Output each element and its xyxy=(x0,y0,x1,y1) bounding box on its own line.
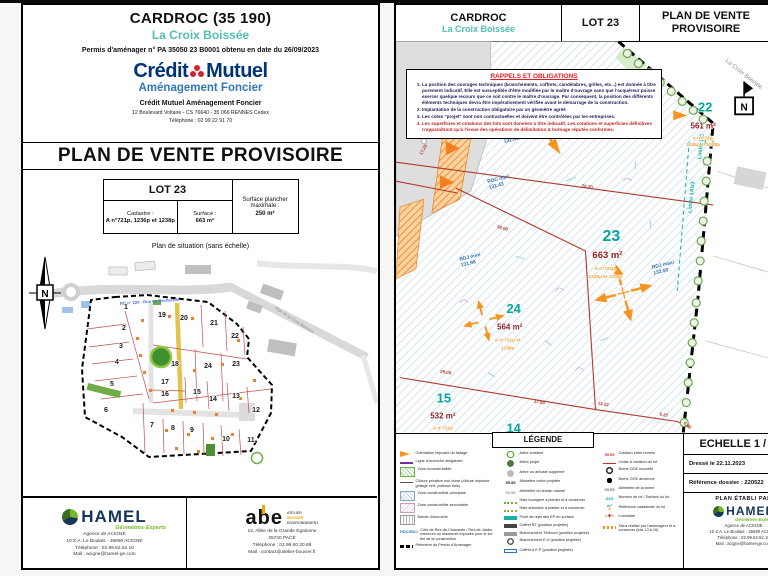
hamel-logo: HAMEL xyxy=(62,507,146,527)
legend-swatch-icon xyxy=(400,451,410,457)
cadastre-value: A n°721p, 1236p et 1238p xyxy=(104,218,178,224)
notice-item: Les cotes "projet" sont non contractuell… xyxy=(422,114,656,120)
legend-item: Coffret BT (position projetée) xyxy=(504,523,596,529)
map-lot-number: 16 xyxy=(161,391,169,398)
floor-area-box: Surface plancher maximale : 250 m² xyxy=(233,179,299,234)
abe-name: abe xyxy=(245,509,282,527)
svg-text:15: 15 xyxy=(437,391,451,406)
credit-mutuel-logo: Crédit Mutuel xyxy=(23,60,378,83)
left-header: CARDROC (35 190) La Croix Boissée Permis… xyxy=(23,5,378,143)
header-doc-cell: PLAN DE VENTE PROVISOIRE xyxy=(640,5,768,41)
hamel-globe-icon xyxy=(713,506,724,517)
legend-item: 55.55Altimétrie de la borne xyxy=(603,486,680,493)
hamel-tagline: Géomètres-Experts xyxy=(115,525,166,531)
legend-swatch-icon xyxy=(603,467,616,474)
legend-label: Numéro de lot / Surface du lot xyxy=(619,495,669,499)
legend-swatch-icon xyxy=(400,462,413,464)
doc-title: PLAN DE VENTE PROVISOIRE xyxy=(23,143,378,170)
hamel-address: Agence de ACIGNÉ10 Z.A. Le Boulais - 356… xyxy=(66,532,142,560)
scale-label: ECHELLE 1 / 250 xyxy=(684,434,768,455)
legend-swatch-icon xyxy=(504,538,517,545)
legend-label: Référence cadastrale du lot xyxy=(619,505,665,509)
legend-label: Zone inconstructible xyxy=(418,467,452,471)
abe-block: abe ATELIER BOUVIER ENVIRONNEMENT 12, Al… xyxy=(187,498,377,568)
hamel-logo: HAMEL xyxy=(684,504,768,518)
legend-label: Altimétrie de la borne xyxy=(619,486,655,490)
legend-swatch-icon xyxy=(603,463,616,464)
svg-text:1238p: 1238p xyxy=(501,346,515,352)
svg-text:A n°721p et: A n°721p et xyxy=(495,338,521,344)
legend-item: Borne OGE nouvelle xyxy=(603,467,680,474)
svg-text:663 m²: 663 m² xyxy=(592,250,622,261)
legend-item: XXX m²Numéro de lot / Surface du lot xyxy=(603,495,680,502)
map-lot-number: 9 xyxy=(190,427,194,434)
legend-label: Zone constructible principale xyxy=(418,491,466,495)
situation-map: N RD n° 220 - Rue de Bécherelle Rue de l… xyxy=(24,251,378,491)
legend-band: LÉGENDE Orientation imposée du faîtageLi… xyxy=(396,433,768,568)
header-doc-title: PLAN DE VENTE PROVISOIRE xyxy=(644,10,768,36)
map-lot-number: 5 xyxy=(110,381,114,388)
legend-label: Ligne d'accroche obligatoire xyxy=(416,459,463,463)
legend-swatch-icon xyxy=(603,477,616,484)
legend-swatch-icon xyxy=(504,460,517,467)
header-place: La Croix Boissée xyxy=(442,24,515,34)
legend-swatch-icon xyxy=(504,506,517,512)
svg-text:532 m²: 532 m² xyxy=(430,412,456,421)
map-lot-number: 17 xyxy=(161,379,169,386)
legend-swatch-icon: XXX m² xyxy=(603,495,616,502)
date-drawn: Dressé le 22.11.2023 xyxy=(684,455,768,474)
header-lot: LOT 23 xyxy=(582,17,619,29)
legend-item: Branchement E.U (position projetée) xyxy=(504,538,596,545)
abe-tagline: ATELIER BOUVIER ENVIRONNEMENT xyxy=(287,511,319,526)
legend-label: Branchement Télécom (position projetée) xyxy=(520,531,590,535)
legend-col-2: Arbre existantArbre projetArbre ou arbus… xyxy=(500,448,599,566)
legend-swatch-icon xyxy=(504,498,517,504)
map-lot-number: 14 xyxy=(209,396,217,403)
legend-item: Zone constructible secondaire xyxy=(400,503,497,513)
legend-label: Orientation imposée du faîtage xyxy=(416,451,468,455)
legend-item: 55.55Altimétrie voirie projetée xyxy=(504,479,596,486)
cm-word-2: Mutuel xyxy=(206,60,267,83)
north-letter: N xyxy=(740,102,747,113)
map-lot-number: 7 xyxy=(150,422,154,429)
legend-label: Haie bocagère à planter et à conserver xyxy=(520,498,586,502)
page-left: CARDROC (35 190) La Croix Boissée Permis… xyxy=(21,3,380,570)
legend-item: Bande d'accroche xyxy=(400,515,497,525)
svg-text:1236p et 1238p: 1236p et 1238p xyxy=(588,274,622,280)
legend-item: Point de rejet des EP en surface xyxy=(504,515,596,521)
legend-label: Talus réalisé par l'aménageur et à conse… xyxy=(619,524,681,533)
legend-swatch-icon: 55.55 xyxy=(603,486,616,493)
left-footer: HAMEL Géomètres-Experts Agence de ACIGNÉ… xyxy=(23,496,377,568)
map-lot-number: 12 xyxy=(252,407,260,414)
abe-tag-line: ENVIRONNEMENT xyxy=(287,521,319,526)
lot-summary: LOT 23 Cadastre : A n°721p, 1236p et 123… xyxy=(23,179,378,234)
legend-swatch-icon xyxy=(504,516,517,520)
cm-tagline: Aménagement Foncier xyxy=(23,82,378,94)
lot-number: LOT 23 xyxy=(104,180,232,201)
legend-col-3: 55.55Cotation entre bornesLimite & cotat… xyxy=(599,448,683,566)
map-lot-number: 4 xyxy=(115,359,119,366)
legend-label: Arbre ou arbuste supprimé xyxy=(520,470,565,474)
legend-swatch-icon xyxy=(400,503,415,513)
legend-label: Périmètre du Permis d'Aménager xyxy=(416,543,472,547)
address-line: 12, Allée de la Grande Egalonne xyxy=(247,529,316,536)
legend-item: Arbre existant xyxy=(504,451,596,458)
map-lot-number: 3 xyxy=(119,343,123,350)
legend-swatch-icon xyxy=(603,526,616,529)
legend-swatch-icon xyxy=(400,479,413,486)
file-reference: Référence dossier : 220522 xyxy=(684,474,768,493)
legend-swatch-icon xyxy=(504,524,517,528)
map-lot-number: 1 xyxy=(124,304,128,311)
legend-item: Clôture privative non close (clôture imp… xyxy=(400,479,497,488)
map-lot-number: 8 xyxy=(171,425,175,432)
detail-plan: RDC mini132.86 RDC mini132.43 RDJ maxi13… xyxy=(396,41,768,433)
address-line: Mail : acigne@hamel-ge.com xyxy=(66,552,142,559)
map-lot-number: 6 xyxy=(104,407,108,414)
surface-value: 663 m² xyxy=(178,218,231,224)
svg-text:A n°721p: A n°721p xyxy=(433,425,453,431)
obligations-notice: RAPPELS ET OBLIGATIONS La position des o… xyxy=(406,69,662,139)
legend-label: Bande d'accroche xyxy=(418,515,448,519)
svg-text:A n°721p,: A n°721p, xyxy=(595,266,617,272)
company-phone: Téléphone : 02 99 22 91 70 xyxy=(23,118,378,124)
legend-item: 55.55Altimétrie du terrain naturel xyxy=(504,489,596,496)
legend-item: Coffret A.E.P (position projetée) xyxy=(504,548,596,553)
north-arrow: N xyxy=(735,81,753,114)
floor-value: 250 m² xyxy=(236,211,295,217)
legend-label: Haie arbustive à planter et à conserver xyxy=(520,506,585,510)
map-lot-number: 21 xyxy=(210,320,218,327)
abe-logo: abe ATELIER BOUVIER ENVIRONNEMENT xyxy=(245,509,318,527)
legend-label: Limite & cotation du lot xyxy=(619,460,657,464)
svg-text:22: 22 xyxy=(698,99,712,114)
hamel-name: HAMEL xyxy=(81,507,146,527)
map-lot-number: 23 xyxy=(232,361,240,368)
header-city: CARDROC xyxy=(450,12,506,24)
legend-label: Clôture privative non close (clôture imp… xyxy=(416,479,498,488)
hamel-globe-icon xyxy=(62,509,78,525)
svg-text:24: 24 xyxy=(506,301,521,316)
legend-item: Arbre projet xyxy=(504,460,596,467)
cadastre-label: Cadastre : xyxy=(104,211,178,217)
legend-label: Zone constructible secondaire xyxy=(418,503,469,507)
svg-text:A n°721p,: A n°721p, xyxy=(692,135,714,141)
legend-swatch-icon xyxy=(504,470,517,477)
legend-item: Zone inconstructible xyxy=(400,467,497,477)
legend-item: Haie arbustive à planter et à conserver xyxy=(504,506,596,512)
hamel-name: HAMEL xyxy=(726,504,768,518)
legend-label: Altimétrie voirie projetée xyxy=(520,479,561,483)
permit-line: Permis d'aménager n° PA 35050 23 B0001 o… xyxy=(23,47,378,54)
legend-swatch-icon xyxy=(504,549,517,553)
legend-item: Branchement Télécom (position projetée) xyxy=(504,531,596,537)
legend-item: Talus réalisé par l'aménageur et à conse… xyxy=(603,524,680,533)
abe-address: 12, Allée de la Grande Egalonne35740 PAC… xyxy=(247,529,316,557)
map-lot-number: 22 xyxy=(231,333,239,340)
company-name: Crédit Mutuel Aménagement Foncier xyxy=(23,100,378,107)
legend-label: Borne OGE ancienne xyxy=(619,477,655,481)
legend-label: Coffret BT (position projetée) xyxy=(520,523,569,527)
map-lot-number: 10 xyxy=(222,436,230,443)
svg-text:1236p et 1238p: 1236p et 1238p xyxy=(686,142,720,148)
notice-item: Les superficies et cotations des lots so… xyxy=(422,121,656,133)
company-address: 12 Boulevard Voltaire - CS 76640 - 35 06… xyxy=(23,110,378,116)
north-letter: N xyxy=(41,289,48,300)
legend-label: Côte de Rez-de-Chaussée / Rez-de-Jardin … xyxy=(420,528,497,541)
map-lot-number: 13 xyxy=(232,393,240,400)
notice-list: La position des ouvrages techniques (bra… xyxy=(412,82,656,133)
legend-swatch-icon xyxy=(504,451,517,458)
hamel-tagline: Géomètres-Experts xyxy=(706,517,768,522)
notice-item: Implantation de la construction obligato… xyxy=(422,107,656,113)
legend-item: A n°XXRéférence cadastrale du lot xyxy=(603,505,680,512)
legend-swatch-icon xyxy=(504,532,517,536)
legend-swatch-icon xyxy=(400,467,415,477)
legend-swatch-icon xyxy=(400,491,415,501)
hamel-address: Agence de ACIGNÉ10 Z.A. Le Boulais - 356… xyxy=(684,523,768,547)
legend-swatch-icon: + xyxy=(603,514,616,521)
legend-item: Ligne d'accroche obligatoire xyxy=(400,459,497,464)
notice-item: La position des ouvrages techniques (bra… xyxy=(422,82,656,106)
page-right: CARDROC La Croix Boissée LOT 23 PLAN DE … xyxy=(394,3,768,570)
legend-label: Borne OGE nouvelle xyxy=(619,467,654,471)
map-lot-number: 19 xyxy=(158,312,166,319)
legend-item: Périmètre du Permis d'Aménager xyxy=(400,543,497,548)
legend-label: Coffret A.E.P (position projetée) xyxy=(520,548,573,552)
legend-label: Branchement E.U (position projetée) xyxy=(520,538,581,542)
svg-text:23: 23 xyxy=(603,228,621,245)
legend-label: Cotation entre bornes xyxy=(619,451,656,455)
cm-word-1: Crédit xyxy=(133,60,188,83)
legend-swatch-icon: A n°XX xyxy=(603,505,616,512)
legend-swatch-icon: 55.55 xyxy=(504,489,517,496)
legend-col-1: Orientation imposée du faîtageLigne d'ac… xyxy=(396,448,500,566)
hamel-block: HAMEL Géomètres-Experts Agence de ACIGNÉ… xyxy=(23,498,187,568)
map-lot-number: 18 xyxy=(171,361,179,368)
legend-item: 55.55Cotation entre bornes xyxy=(603,451,680,458)
map-lot-number: 2 xyxy=(122,325,126,332)
legend-swatch-icon: 55.55 xyxy=(603,451,616,458)
surface-cell: Surface : 663 m² xyxy=(178,201,231,233)
address-line: Mail : acigne@hamel-ge.com xyxy=(684,541,768,547)
legend-label: Point de rejet des EP en surface xyxy=(520,515,574,519)
legend-columns: Orientation imposée du faîtageLigne d'ac… xyxy=(396,448,683,566)
credit-mutuel-flower-icon xyxy=(190,65,204,78)
legend-swatch-icon xyxy=(400,515,415,525)
address-line: 35740 PACÉ xyxy=(247,536,316,543)
legend-swatch-icon: RDC/RDJ xyxy=(400,528,418,535)
legend-label: Luminaire xyxy=(619,514,636,518)
lot-box: LOT 23 Cadastre : A n°721p, 1236p et 123… xyxy=(103,179,233,234)
legend-label: Arbre existant xyxy=(520,451,543,455)
map-caption: Plan de situation (sans échelle) xyxy=(23,243,378,250)
map-lot-number: 24 xyxy=(204,363,212,370)
address-line: Téléphone : 02.99.60.20.68 xyxy=(247,543,316,550)
address-line: Mail : contact@atelier-bouvier.fr xyxy=(247,550,316,557)
map-lot-number: 20 xyxy=(180,315,188,322)
svg-text:561 m²: 561 m² xyxy=(691,121,717,130)
legend-swatch-icon: 55.55 xyxy=(504,479,517,486)
legend-item: Orientation imposée du faîtage xyxy=(400,451,497,457)
legend-title: LÉGENDE xyxy=(492,432,594,448)
north-arrow: N xyxy=(29,257,61,329)
right-header: CARDROC La Croix Boissée LOT 23 PLAN DE … xyxy=(396,5,768,42)
legend-item: Limite & cotation du lot xyxy=(603,460,680,464)
notice-title: RAPPELS ET OBLIGATIONS xyxy=(412,73,656,80)
legend-item: Haie bocagère à planter et à conserver xyxy=(504,498,596,504)
floor-label: Surface plancher maximale : xyxy=(236,197,295,209)
svg-text:564 m²: 564 m² xyxy=(497,323,523,332)
legend-item: Zone constructible principale xyxy=(400,491,497,501)
map-lot-number: 15 xyxy=(193,389,201,396)
map-lot-number: 11 xyxy=(247,437,255,444)
offsite-parcels xyxy=(705,166,768,358)
legend-label: Altimétrie du terrain naturel xyxy=(520,489,566,493)
header-lot-cell: LOT 23 xyxy=(562,5,640,41)
legend-label: Arbre projet xyxy=(520,460,540,464)
legend-item: Arbre ou arbuste supprimé xyxy=(504,470,596,477)
cadastre-cell: Cadastre : A n°721p, 1236p et 1238p xyxy=(104,201,179,233)
address-line: 10 Z.A. Le Boulais - 35690 ACIGNÉ xyxy=(66,539,142,546)
street-label: Rue de la Croix Boissée xyxy=(274,306,315,335)
page-title: CARDROC (35 190) xyxy=(23,10,378,27)
legend-swatch-icon xyxy=(400,545,413,548)
legend-item: +Luminaire xyxy=(603,514,680,521)
header-city-cell: CARDROC La Croix Boissée xyxy=(396,5,562,41)
surface-label: Surface : xyxy=(178,211,231,217)
made-by-label: PLAN ÉTABLI PAR xyxy=(684,496,768,502)
legend-item: RDC/RDJCôte de Rez-de-Chaussée / Rez-de-… xyxy=(400,528,497,541)
legend-item: Borne OGE ancienne xyxy=(603,477,680,484)
plan-info-box: ECHELLE 1 / 250 Dressé le 22.11.2023 Réf… xyxy=(683,434,768,568)
address-line: Agence de ACIGNÉ xyxy=(66,532,142,539)
project-subtitle: La Croix Boissée xyxy=(23,28,378,42)
